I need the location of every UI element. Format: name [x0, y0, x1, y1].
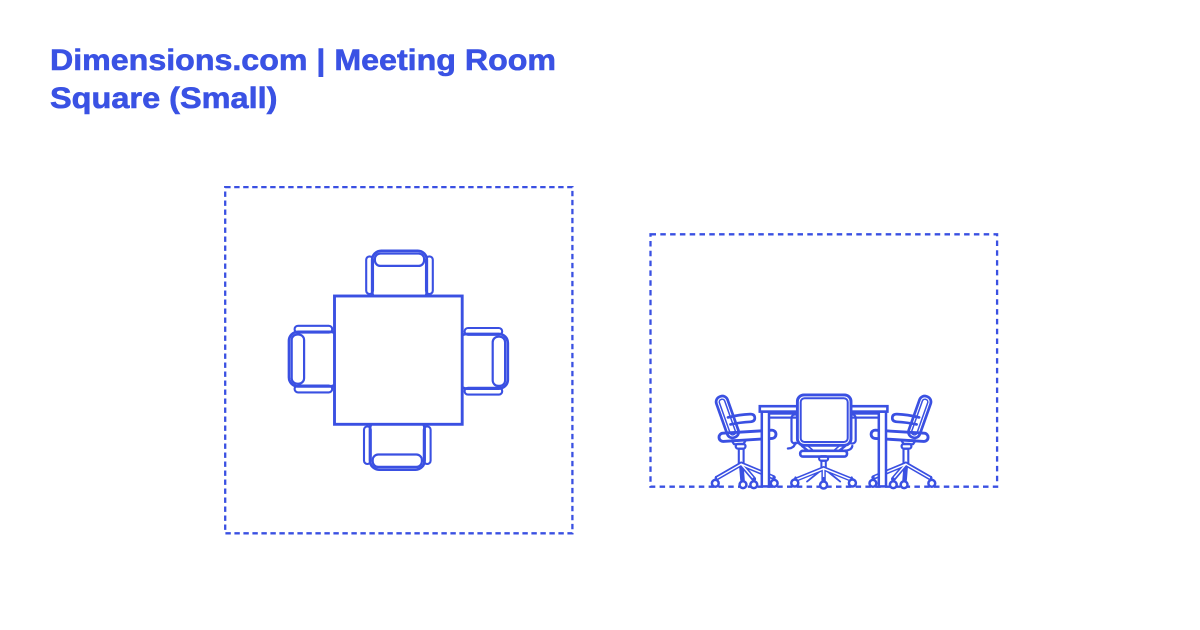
svg-text:Square (Small): Square (Small) — [50, 82, 278, 115]
svg-text:Dimensions.com | Meeting Room: Dimensions.com | Meeting Room — [50, 44, 556, 77]
